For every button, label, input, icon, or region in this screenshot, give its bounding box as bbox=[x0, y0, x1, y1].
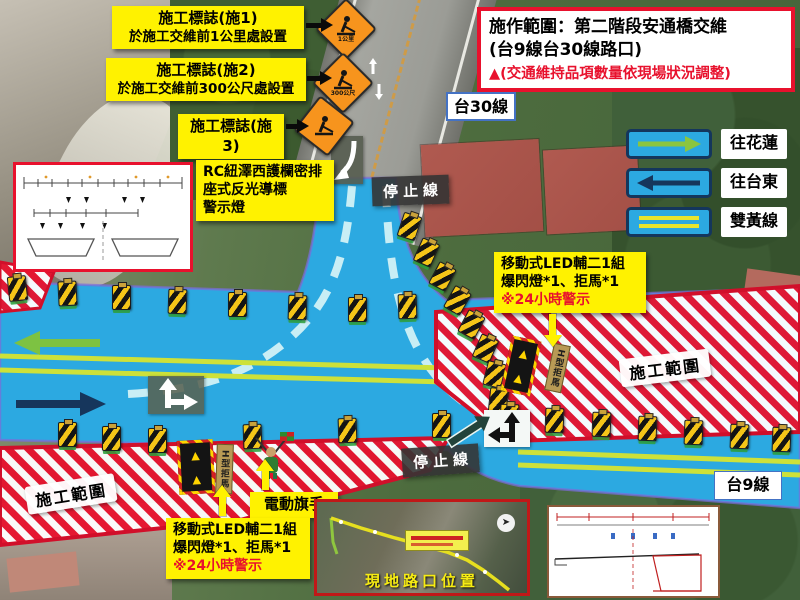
title-box: 施作範圍：第二階段安通橋交維 (台9線台30線路口) ▲(交通維持品項數量依現場… bbox=[477, 7, 795, 92]
callout-sign1-desc: 於施工交維前1公里處設置 bbox=[119, 29, 297, 47]
pointer-arrow-icon bbox=[306, 23, 322, 28]
green-right-arrow-icon bbox=[633, 135, 705, 153]
yellow-pointer-up-icon bbox=[262, 470, 269, 490]
callout-rc-barrier: RC紐澤西護欄密排 座式反光導標 警示燈 bbox=[196, 160, 334, 221]
traffic-barrier-icon bbox=[730, 424, 750, 450]
led-right-line2: 爆閃燈*1、拒馬*1 bbox=[501, 273, 639, 291]
traffic-barrier-icon bbox=[592, 412, 612, 438]
rc-line3: 警示燈 bbox=[203, 199, 327, 217]
callout-sign1-title: 施工標誌(施1) bbox=[119, 9, 297, 29]
traffic-barrier-icon bbox=[288, 295, 308, 321]
title-line2: (台9線台30線路口) bbox=[489, 39, 783, 62]
title-note: ▲(交通維持品項數量依現場狀況調整) bbox=[489, 65, 783, 85]
flagman-icon bbox=[244, 430, 298, 480]
route-label-tai9: 台9線 bbox=[714, 471, 782, 500]
callout-sign3-title: 施工標誌(施3) bbox=[185, 117, 277, 156]
traffic-barrier-icon bbox=[638, 416, 658, 442]
straight-and-left-turn-icon bbox=[484, 410, 530, 447]
pointer-arrow-icon bbox=[307, 76, 321, 81]
legend-symbol-to-taitung bbox=[626, 168, 712, 198]
traffic-barrier-icon bbox=[7, 275, 29, 302]
pointer-arrow-icon bbox=[286, 124, 298, 129]
led-arrow-board-left: ▲▲ bbox=[177, 439, 216, 495]
bridge-plan-drawing bbox=[13, 162, 193, 272]
compass-icon: ➤ bbox=[497, 514, 515, 532]
traffic-barrier-icon bbox=[348, 297, 367, 322]
inset-highlight-box bbox=[405, 530, 469, 551]
location-inset-map: ➤ 現地路口位置 bbox=[314, 499, 530, 596]
traffic-barrier-icon bbox=[398, 294, 418, 320]
sign1-distance-caption: 1公里 bbox=[338, 37, 354, 43]
traffic-barrier-icon bbox=[112, 285, 131, 310]
legend-label-double-yellow: 雙黃線 bbox=[721, 207, 787, 237]
traffic-barrier-icon bbox=[57, 281, 77, 307]
straight-and-right-turn-icon bbox=[148, 376, 204, 414]
traffic-barrier-icon bbox=[338, 418, 358, 444]
led-right-line3: ※24小時警示 bbox=[501, 291, 639, 309]
traffic-barrier-icon bbox=[545, 408, 565, 434]
stop-line-label-bottom: 停止線 bbox=[401, 443, 480, 477]
traffic-barrier-icon bbox=[684, 420, 704, 446]
callout-led-right: 移動式LED輔二1組 爆閃燈*1、拒馬*1 ※24小時警示 bbox=[494, 252, 646, 313]
cross-section-drawing bbox=[547, 505, 720, 598]
legend-symbol-double-yellow bbox=[626, 207, 712, 237]
double-yellow-line-icon bbox=[633, 213, 705, 231]
traffic-barrier-icon bbox=[168, 289, 188, 315]
rc-line2: 座式反光導標 bbox=[203, 181, 327, 199]
led-bottom-line3: ※24小時警示 bbox=[173, 557, 303, 575]
yellow-pointer-down-icon bbox=[549, 314, 556, 336]
inset-caption: 現地路口位置 bbox=[317, 570, 527, 591]
callout-sign2-desc: 於施工交維前300公尺處設置 bbox=[113, 81, 299, 99]
led-right-line1: 移動式LED輔二1組 bbox=[501, 255, 639, 273]
navy-left-arrow-icon bbox=[633, 174, 705, 192]
callout-sign1: 施工標誌(施1) 於施工交維前1公里處設置 bbox=[112, 6, 304, 49]
callout-sign3: 施工標誌(施3) bbox=[178, 114, 284, 159]
legend-label-to-hualien: 往花蓮 bbox=[721, 129, 787, 159]
title-line1: 施作範圍：第二階段安通橋交維 bbox=[489, 16, 783, 39]
traffic-control-plan: 施工標誌(施1) 於施工交維前1公里處設置 1公里 施工標誌(施2) 於施工交維… bbox=[0, 0, 800, 600]
stop-line-label-top: 停止線 bbox=[372, 175, 450, 207]
led-bottom-line2: 爆閃燈*1、拒馬*1 bbox=[173, 539, 303, 557]
led-bottom-line1: 移動式LED輔二1組 bbox=[173, 521, 303, 539]
traffic-barrier-icon bbox=[148, 428, 167, 453]
traffic-barrier-icon bbox=[432, 413, 451, 438]
electric-flagman-figure bbox=[244, 430, 298, 480]
traffic-barrier-icon bbox=[58, 422, 77, 447]
traffic-barrier-icon bbox=[228, 292, 247, 317]
straight-left-arrow-panel bbox=[484, 410, 530, 447]
straight-right-arrow-panel bbox=[148, 376, 204, 414]
sign2-distance-caption: 300公尺 bbox=[331, 91, 356, 97]
callout-sign2-title: 施工標誌(施2) bbox=[113, 61, 299, 81]
yellow-pointer-up-icon bbox=[219, 496, 226, 516]
legend-label-to-taitung: 往台東 bbox=[721, 168, 787, 198]
traffic-barrier-icon bbox=[772, 427, 792, 453]
callout-sign2: 施工標誌(施2) 於施工交維前300公尺處設置 bbox=[106, 58, 306, 101]
route-label-tai30: 台30線 bbox=[446, 92, 516, 121]
legend-symbol-to-hualien bbox=[626, 129, 712, 159]
rc-line1: RC紐澤西護欄密排 bbox=[203, 163, 327, 181]
traffic-barrier-icon bbox=[102, 426, 121, 451]
callout-led-bottom: 移動式LED輔二1組 爆閃燈*1、拒馬*1 ※24小時警示 bbox=[166, 518, 310, 579]
